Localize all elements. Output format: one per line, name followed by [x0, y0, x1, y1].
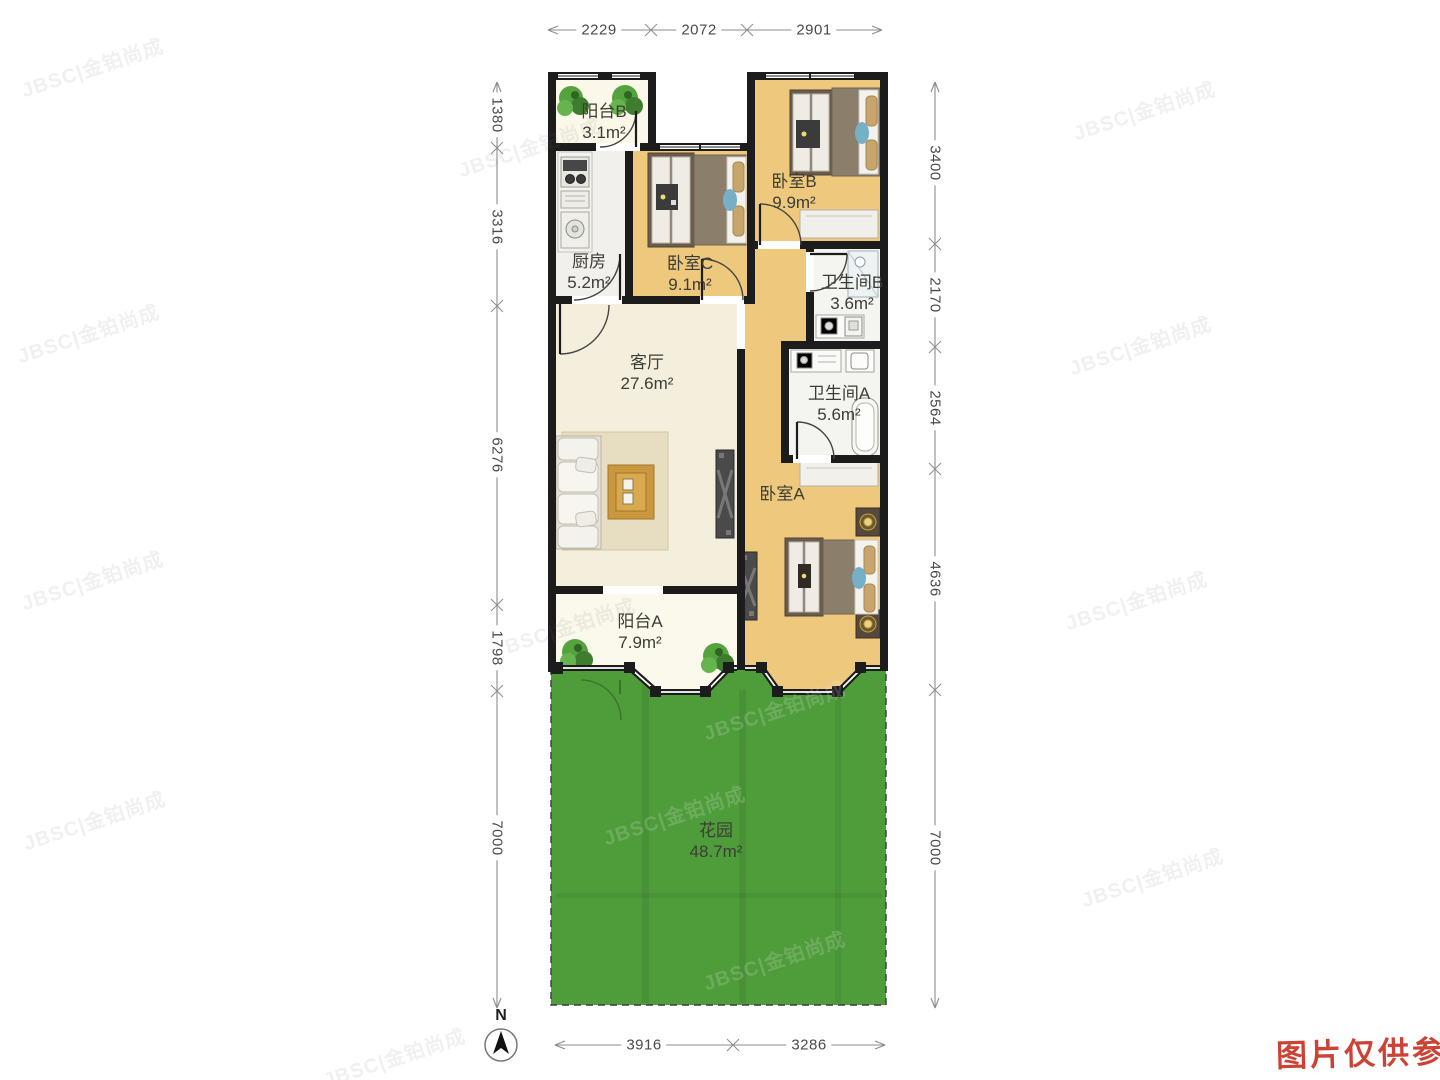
room-area: 9.1m²: [620, 274, 760, 295]
room-label-balcony-a: 阳台A 7.9m²: [570, 611, 710, 653]
dim-right-2: 2170: [927, 272, 944, 317]
floorplan-image: JBSC|金铂尚成 JBSC|金铂尚成 JBSC|金铂尚成 JBSC|金铂尚成 …: [0, 0, 1440, 1080]
room-label-balcony-b: 阳台B 3.1m²: [534, 101, 674, 143]
dim-left-1: 1380: [489, 92, 506, 137]
room-name: 阳台B: [534, 101, 674, 122]
dim-top-3: 2901: [791, 22, 836, 39]
floorplan-graphic: [0, 0, 1440, 1080]
sofa: [556, 436, 601, 549]
room-name: 花园: [646, 820, 786, 841]
kitchen-counter: [558, 152, 592, 252]
room-area: 27.6m²: [577, 373, 717, 394]
room-name: 卧室A: [712, 484, 852, 505]
bedroom-a-dresser: [800, 462, 878, 486]
room-area: 3.6m²: [782, 293, 922, 314]
dim-bottom-2: 3286: [786, 1037, 831, 1054]
dim-right-4: 4636: [927, 556, 944, 601]
bedroom-b-bed: [790, 88, 880, 238]
room-area: 3.1m²: [534, 122, 674, 143]
dim-left-3: 6276: [489, 432, 506, 477]
coffee-table: [608, 465, 654, 519]
disclaimer-text: 图片仅供参考: [1275, 1025, 1440, 1075]
room-name: 阳台A: [570, 611, 710, 632]
north-compass: [485, 1029, 517, 1061]
room-name: 卧室B: [724, 171, 864, 192]
room-area: 7.9m²: [570, 632, 710, 653]
room-name: 客厅: [577, 352, 717, 373]
room-label-living: 客厅 27.6m²: [577, 352, 717, 394]
room-name: 卫生间B: [782, 272, 922, 293]
room-label-bedroom-b: 卧室B 9.9m²: [724, 171, 864, 213]
room-area: 48.7m²: [646, 841, 786, 862]
dim-right-1: 3400: [927, 140, 944, 185]
room-label-bath-b: 卫生间B 3.6m²: [782, 272, 922, 314]
dim-left-2: 3316: [489, 204, 506, 249]
dim-right-5: 7000: [927, 825, 944, 870]
room-area: 9.9m²: [724, 192, 864, 213]
dim-top-2: 2072: [676, 22, 721, 39]
room-name: 卧室C: [620, 253, 760, 274]
room-label-bath-a: 卫生间A 5.6m²: [769, 383, 909, 425]
room-label-bedroom-c: 卧室C 9.1m²: [620, 253, 760, 295]
room-name: 卫生间A: [769, 383, 909, 404]
dim-top-1: 2229: [576, 22, 621, 39]
dim-left-4: 1798: [489, 625, 506, 670]
dim-left-5: 7000: [489, 815, 506, 860]
north-label: N: [495, 1007, 507, 1025]
room-label-garden: 花园 48.7m²: [646, 820, 786, 862]
dim-right-3: 2564: [927, 385, 944, 430]
room-area: 5.6m²: [769, 404, 909, 425]
room-label-bedroom-a: 卧室A: [712, 484, 852, 505]
bedroom-b-bench: [800, 210, 878, 238]
dim-bottom-1: 3916: [621, 1037, 666, 1054]
